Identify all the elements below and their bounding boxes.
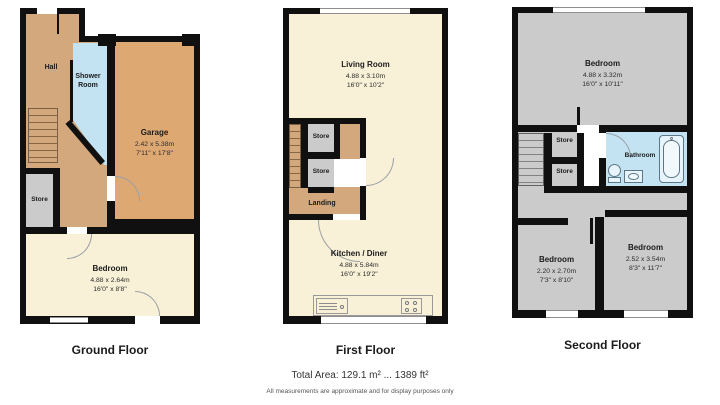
room-size-metric: 4.88 x 5.84m <box>284 262 434 271</box>
burner <box>413 308 417 312</box>
room-label-bedroom-left: Bedroom 2.20 x 2.70m 7'3" x 8'10" <box>518 255 595 286</box>
room-label-landing: Landing <box>293 199 351 208</box>
burner <box>413 301 417 305</box>
patio-door-opening <box>135 316 160 324</box>
staircase <box>289 124 301 188</box>
room-name: Bedroom <box>604 243 687 253</box>
sink-drainer <box>319 301 337 312</box>
wall <box>308 187 334 193</box>
wall <box>442 8 448 324</box>
window <box>546 310 578 318</box>
room-name: Bedroom <box>26 264 194 274</box>
room-label-store: Store <box>24 196 55 204</box>
room-label-garage: Garage 2.42 x 5.38m 7'11" x 17'8" <box>115 128 194 159</box>
room-label-living-room: Living Room 4.88 x 3.10m 16'0" x 10'2" <box>289 60 442 91</box>
wall <box>599 125 687 132</box>
room-size-metric: 2.20 x 2.70m <box>518 268 595 277</box>
caption-ground-floor: Ground Floor <box>20 343 200 357</box>
window <box>321 316 426 324</box>
door-leaf <box>577 107 580 125</box>
second-floor-plan: Bedroom 4.88 x 3.32m 16'0" x 10'11" Stor… <box>512 7 693 318</box>
room-name: Bedroom <box>518 59 687 69</box>
wall <box>20 227 200 234</box>
kitchen-sink-icon <box>316 298 348 314</box>
burner <box>405 308 409 312</box>
total-area-text: Total Area: 129.1 m² ... 1389 ft² <box>160 370 560 381</box>
room-size-imperial: 16'0" x 8'8" <box>26 286 194 295</box>
room-size-imperial: 8'3" x 11'7" <box>604 265 687 274</box>
wall <box>512 125 577 132</box>
staircase <box>28 108 58 163</box>
room-label-shower-room: Shower Room <box>67 72 109 90</box>
wall <box>512 218 568 225</box>
wall <box>194 36 200 324</box>
room-size-imperial: 16'0" x 10'11" <box>518 81 687 90</box>
room-size-imperial: 16'0" x 19'2" <box>284 271 434 280</box>
caption-first-floor: First Floor <box>283 343 448 357</box>
garage-door-opening <box>107 176 115 201</box>
wall <box>20 316 200 324</box>
room-size-metric: 4.88 x 2.64m <box>26 277 194 286</box>
room-name: Garage <box>115 128 194 138</box>
room-label-store-lower: Store <box>308 168 334 176</box>
wall <box>283 118 366 124</box>
drain <box>670 137 673 140</box>
room-label-store-upper: Store <box>308 133 334 141</box>
doorway-area <box>584 133 599 186</box>
burner <box>405 301 409 305</box>
room-label-hall: Hall <box>30 63 72 72</box>
room-label-bedroom: Bedroom 4.88 x 2.64m 16'0" x 8'8" <box>26 264 194 295</box>
room-size-metric: 2.42 x 5.38m <box>115 141 194 150</box>
wall <box>595 217 604 310</box>
window <box>320 8 410 14</box>
doorway-area <box>334 159 360 187</box>
caption-second-floor: Second Floor <box>512 338 693 352</box>
room-label-bedroom-main: Bedroom 4.88 x 3.32m 16'0" x 10'11" <box>518 59 687 90</box>
floorplan-page: Hall Shower Room Garage 2.42 x 5.38m 7'1… <box>0 0 720 405</box>
window <box>624 310 668 318</box>
room-size-metric: 4.88 x 3.32m <box>518 72 687 81</box>
sink-icon <box>624 170 643 183</box>
wall <box>577 133 584 186</box>
wall <box>308 152 334 159</box>
room-size-metric: 4.88 x 3.10m <box>289 73 442 82</box>
bathroom-door-opening <box>599 133 606 158</box>
wall <box>544 186 687 193</box>
room-label-store-upper: Store <box>552 137 577 145</box>
room-name: Kitchen / Diner <box>284 249 434 259</box>
ground-floor-plan: Hall Shower Room Garage 2.42 x 5.38m 7'1… <box>20 8 200 324</box>
room-label-kitchen-diner: Kitchen / Diner 4.88 x 5.84m 16'0" x 19'… <box>284 249 434 280</box>
room-label-store-lower: Store <box>552 168 577 176</box>
first-floor-plan: Living Room 4.88 x 3.10m 16'0" x 10'2" S… <box>283 8 448 324</box>
wall <box>605 210 687 217</box>
staircase <box>518 133 544 186</box>
sink-basin <box>628 173 639 180</box>
bedroom-door-opening <box>577 125 599 133</box>
bedroom-door-opening <box>67 227 87 234</box>
stove-icon <box>401 298 422 314</box>
front-door-opening <box>37 8 57 14</box>
room-name: Bedroom <box>518 255 595 265</box>
room-label-bedroom-right: Bedroom 2.52 x 3.54m 8'3" x 11'7" <box>604 243 687 274</box>
room-name: Living Room <box>289 60 442 70</box>
wall <box>334 124 340 159</box>
window <box>50 317 88 323</box>
door-leaf <box>590 218 593 244</box>
wall <box>107 219 194 227</box>
room-size-metric: 2.52 x 3.54m <box>604 256 687 265</box>
toilet-icon <box>608 164 621 177</box>
room-size-imperial: 16'0" x 10'2" <box>289 82 442 91</box>
toilet-cistern <box>608 177 621 183</box>
room-label-bathroom: Bathroom <box>610 152 670 160</box>
wall <box>301 124 308 188</box>
faucet <box>340 305 344 309</box>
door-leaf <box>57 14 59 34</box>
wall <box>687 7 693 318</box>
room-size-imperial: 7'3" x 8'10" <box>518 277 595 286</box>
wall <box>544 133 552 186</box>
disclaimer-text: All measurements are approximate and for… <box>160 388 560 395</box>
room-size-imperial: 7'11" x 17'8" <box>115 150 194 159</box>
window <box>553 7 645 13</box>
